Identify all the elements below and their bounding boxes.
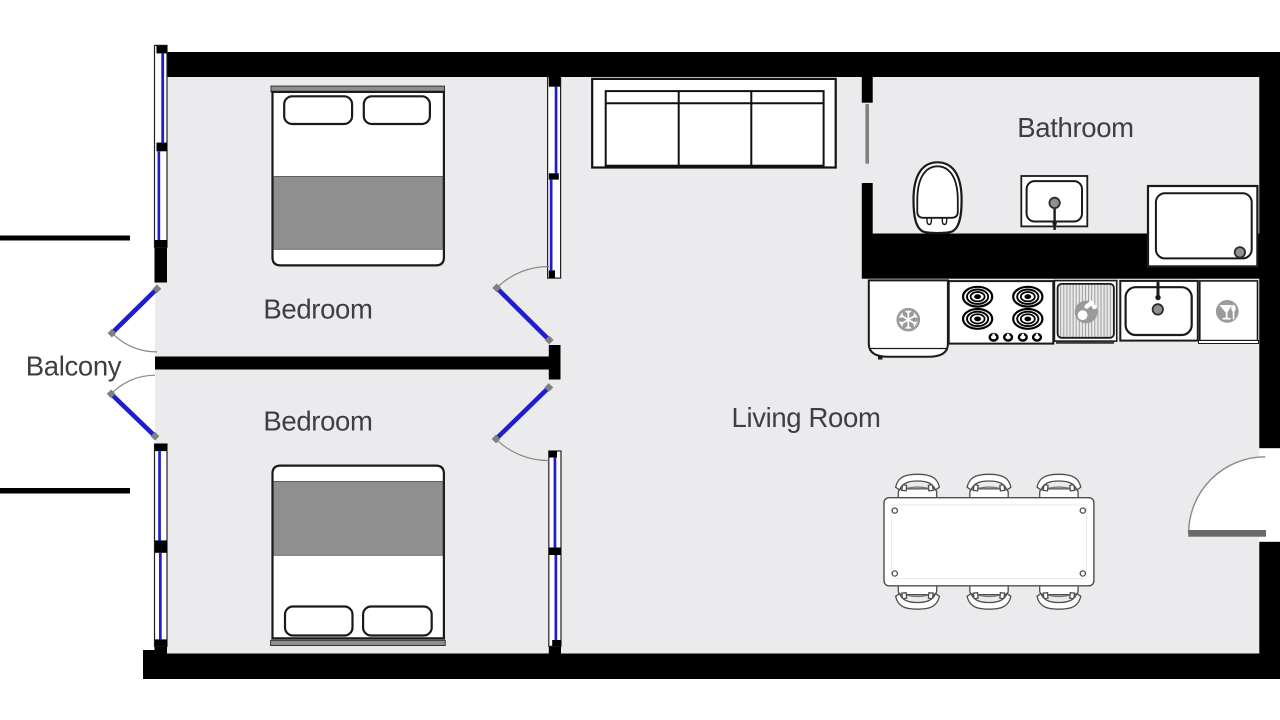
svg-text:Bathroom: Bathroom [1017,112,1133,143]
svg-text:Living Room: Living Room [732,402,881,433]
svg-text:Balcony: Balcony [26,351,122,382]
svg-text:Bedroom: Bedroom [263,294,372,325]
svg-text:Bedroom: Bedroom [263,406,372,437]
